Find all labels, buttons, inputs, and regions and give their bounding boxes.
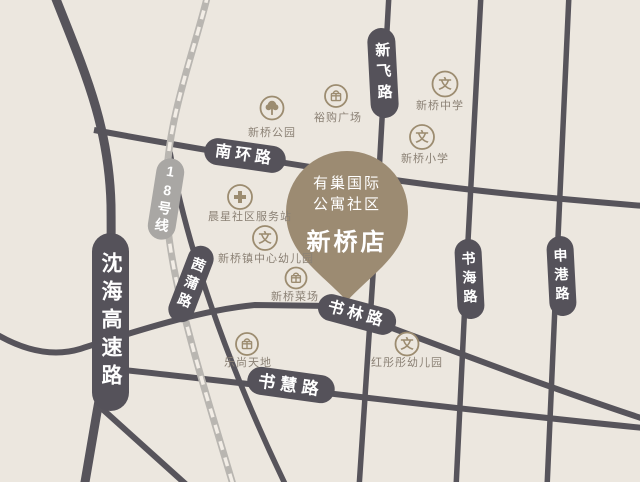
store-pin-label: 有巢国际 公寓社区 新桥店 — [277, 173, 417, 257]
tree-icon — [261, 97, 284, 120]
poi-label-xinqiao-park: 新桥公园 — [248, 124, 296, 140]
store-name: 新桥店 — [277, 222, 417, 257]
road-badge-xinfei: 新飞路 — [367, 27, 400, 118]
gift-icon — [236, 333, 258, 355]
school-icon: 文 — [433, 72, 458, 97]
brand-line-1: 有巢国际 — [277, 173, 417, 194]
railway-casing — [166, 0, 234, 482]
road-badge-shenhai: 沈海高速路 — [92, 233, 129, 411]
clinic-icon — [228, 185, 252, 209]
school-glyph: 文 — [415, 130, 429, 145]
school-glyph: 文 — [400, 337, 414, 352]
road-shuhui — [104, 368, 640, 428]
school-icon: 文 — [410, 125, 434, 149]
poi-label-yugou-plaza: 裕购广场 — [314, 109, 362, 125]
brand-line-2: 公寓社区 — [277, 194, 417, 215]
school-glyph: 文 — [438, 77, 452, 92]
poi-label-xinqiao-market: 新桥菜场 — [271, 288, 319, 304]
gift-icon — [325, 85, 347, 107]
metro-line-18-track — [166, 0, 234, 482]
school-icon: 文 — [396, 333, 419, 356]
railway-dashes — [166, 0, 234, 482]
poi-label-hongtongtong-kindergarten: 红彤彤幼儿园 — [371, 354, 443, 370]
road-interchange-branch — [99, 406, 190, 482]
road-badge-shuhai: 书海路 — [454, 238, 485, 319]
poi-label-xinqiao-primary-school: 新桥小学 — [401, 150, 449, 166]
poi-label-xinqiao-middle-school: 新桥中学 — [416, 97, 464, 113]
location-map: 文 文 文 — [0, 0, 640, 482]
gift-icon — [286, 268, 307, 289]
school-glyph: 文 — [258, 231, 272, 246]
road-badge-shengang: 申港路 — [546, 235, 577, 316]
school-icon: 文 — [253, 226, 277, 250]
